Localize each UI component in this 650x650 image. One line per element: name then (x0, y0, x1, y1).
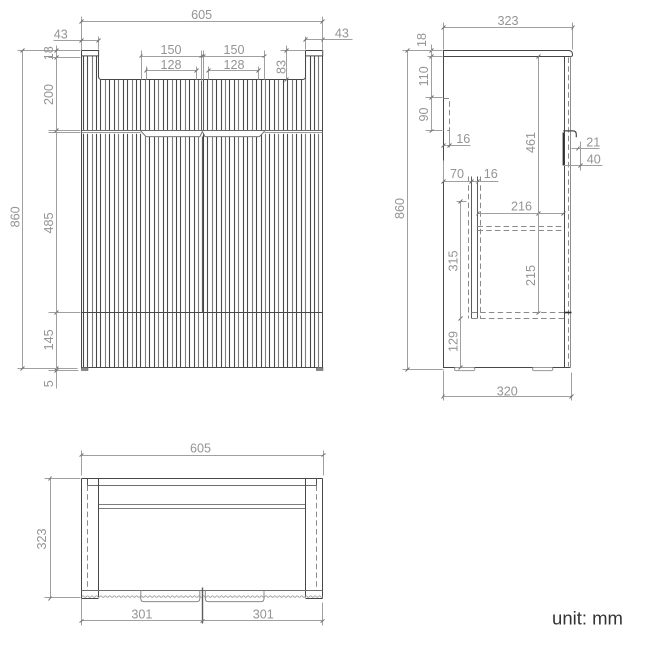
svg-text:18: 18 (415, 33, 429, 47)
svg-text:320: 320 (497, 384, 518, 398)
svg-text:40: 40 (587, 153, 601, 167)
svg-text:16: 16 (456, 132, 470, 146)
svg-text:70: 70 (450, 167, 464, 181)
svg-text:43: 43 (54, 27, 68, 41)
svg-text:301: 301 (253, 608, 274, 622)
svg-text:150: 150 (160, 43, 181, 57)
svg-text:unit: mm: unit: mm (552, 608, 623, 629)
svg-text:315: 315 (446, 250, 460, 271)
svg-text:145: 145 (42, 329, 56, 350)
svg-text:216: 216 (511, 200, 532, 214)
svg-text:43: 43 (335, 27, 349, 41)
svg-text:83: 83 (274, 60, 288, 74)
svg-text:860: 860 (8, 206, 22, 227)
svg-text:128: 128 (223, 58, 244, 72)
svg-text:150: 150 (223, 43, 244, 57)
svg-text:301: 301 (131, 608, 152, 622)
svg-text:5: 5 (42, 380, 56, 387)
svg-text:461: 461 (524, 132, 538, 153)
svg-text:21: 21 (586, 135, 600, 149)
svg-text:323: 323 (35, 528, 49, 549)
svg-text:605: 605 (191, 8, 212, 22)
svg-text:605: 605 (190, 442, 211, 456)
svg-text:16: 16 (484, 167, 498, 181)
svg-text:128: 128 (160, 58, 181, 72)
svg-text:860: 860 (393, 198, 407, 219)
svg-text:323: 323 (497, 14, 518, 28)
svg-text:18: 18 (42, 46, 56, 60)
svg-text:200: 200 (42, 84, 56, 105)
svg-text:129: 129 (446, 331, 460, 352)
svg-text:485: 485 (42, 212, 56, 233)
svg-text:90: 90 (417, 107, 431, 121)
svg-text:110: 110 (417, 66, 431, 86)
svg-text:215: 215 (524, 265, 538, 286)
